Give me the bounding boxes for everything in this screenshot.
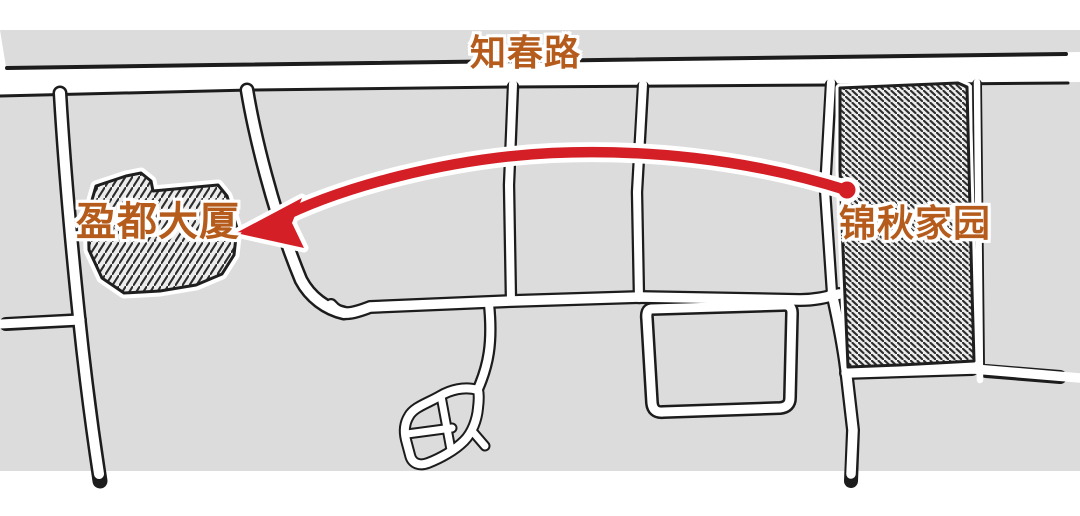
road-label-zhichunlu: 知春路: [470, 36, 581, 72]
building-label-jinqiu: 锦秋家园: [839, 205, 991, 242]
road-v4: [509, 84, 513, 301]
route-arrow-start-dot: [839, 182, 856, 199]
building-label-yingdu: 盈都大厦: [76, 202, 240, 242]
map-canvas: [0, 0, 1080, 516]
road-left-stub: [0, 320, 80, 324]
sketch-map: 知春路 盈都大厦 锦秋家园: [0, 0, 1080, 516]
